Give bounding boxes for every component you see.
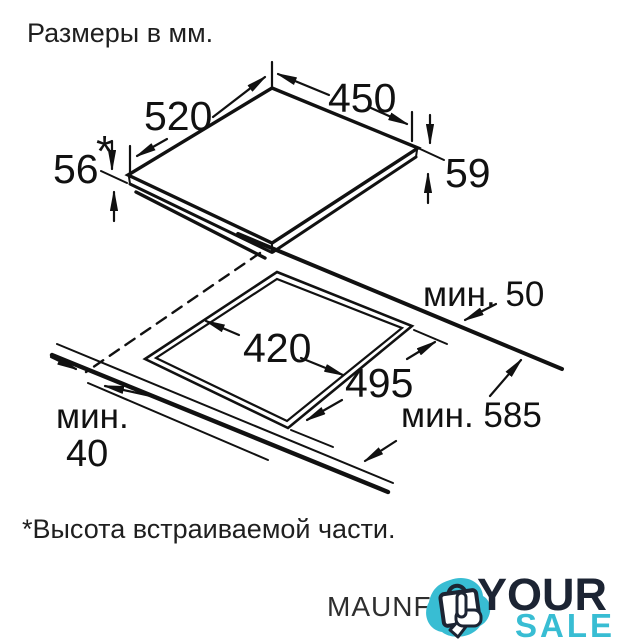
dim-total-depth-label: мин. 585 [401, 396, 542, 435]
arrow-495-upper [407, 342, 435, 359]
dim-cooktop-height-left-label: 56 [53, 146, 99, 192]
dim-cooktop-width-label: 450 [328, 75, 396, 121]
yoursale-logo: YOUR SALE [420, 572, 619, 640]
dim-cooktop-height-right-label: 59 [445, 150, 491, 196]
ref-line-59 [418, 148, 444, 160]
dim-cutout-width-label: 420 [243, 325, 311, 371]
cutout-extension-right [414, 330, 447, 344]
hand-finger [457, 593, 466, 617]
dim-cooktop-depth-label: 520 [144, 93, 212, 139]
footnote: *Высота встраиваемой части. [22, 514, 396, 545]
dim-rear-clearance-label: мин. 50 [423, 275, 544, 314]
arrow-min585-upper [490, 360, 521, 396]
arrow-min585-lower [365, 441, 396, 461]
dim-height-asterisk: * [96, 127, 113, 176]
product-dimensions-page: Размеры в мм. [0, 0, 619, 640]
dim-front-clearance-word: мин. [56, 397, 129, 436]
logo-word-bottom: SALE [515, 609, 615, 640]
dim-front-clearance-value: 40 [66, 433, 108, 475]
